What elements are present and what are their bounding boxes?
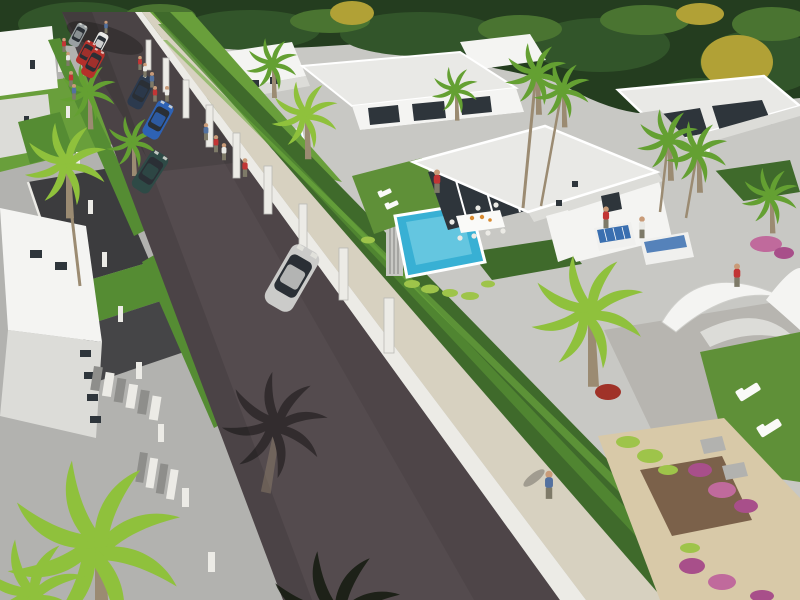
woman-at-pool <box>434 170 441 193</box>
pedestrian-on-sidewalk <box>545 471 553 499</box>
woman-by-canopy <box>734 264 741 287</box>
apartment-building <box>0 208 102 438</box>
render-canvas <box>0 0 800 600</box>
man-by-solar-unit <box>603 206 609 228</box>
villa-development-render <box>0 0 800 600</box>
man-in-white <box>639 216 645 238</box>
